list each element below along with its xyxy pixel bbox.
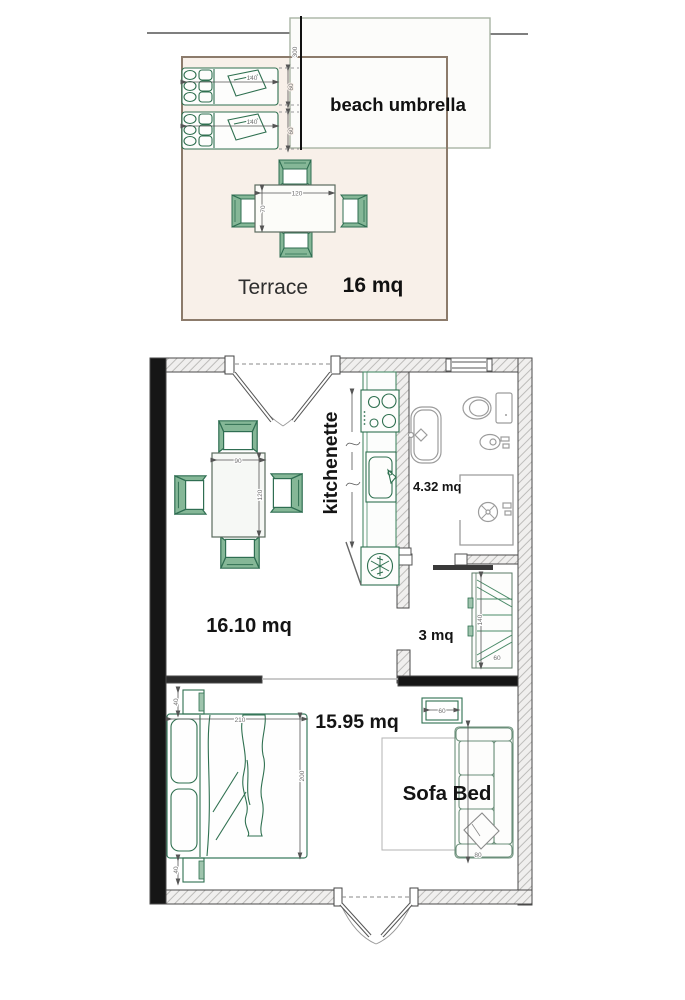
bathroom: 4.32 mq: [409, 393, 514, 545]
kitchen-sink: [366, 452, 396, 502]
living-room: 90 120 16.10 mq: [175, 421, 302, 637]
wardrobe: 140 60: [468, 573, 512, 668]
bath-sink: [409, 407, 442, 463]
dim-boundary: 300: [292, 46, 299, 57]
dim-dining-width: 90: [234, 458, 242, 465]
closet-area-label: 3 mq: [418, 627, 453, 644]
wall-bottom-1: [166, 890, 338, 904]
dim-nightstand-bottom: 40: [173, 866, 180, 874]
wall-closet-bottom: [398, 676, 518, 686]
bathroom-window: [446, 358, 492, 372]
dim-lounger2-width: 60: [288, 127, 295, 135]
beach-umbrella-zone: [290, 18, 490, 148]
side-table: 60: [422, 698, 462, 723]
dim-nightstand-top: 40: [173, 698, 180, 706]
kitchen-dim-line: [346, 392, 360, 545]
wall-bottom-2: [412, 890, 532, 904]
shower: [460, 475, 513, 545]
toilet: [463, 393, 512, 423]
bidet: [480, 435, 509, 450]
dim-dining-length: 120: [257, 489, 264, 500]
dim-bed-length: 200: [299, 770, 306, 781]
dim-wardrobe-length: 140: [477, 614, 484, 625]
floorplan-drawing: 300 140 60: [0, 0, 685, 1000]
dim-terrace-table-length: 120: [292, 191, 303, 198]
wall-bedroom-divider: [166, 676, 262, 683]
kitchenette: kitchenette: [320, 372, 399, 585]
bedroom-area-label: 15.95 mq: [315, 711, 398, 733]
fridge: [346, 542, 399, 585]
nightstand-bottom: 40: [173, 858, 204, 882]
dim-lounger2-length: 140: [247, 119, 258, 126]
wall-top-2: [340, 358, 448, 372]
fridge-door-line: [346, 542, 361, 585]
bathroom-area-label: 4.32 mq: [413, 479, 461, 494]
wall-top-1: [166, 358, 226, 372]
living-area-label: 16.10 mq: [206, 615, 292, 637]
double-bed: 210 200: [167, 714, 307, 858]
kitchenette-label: kitchenette: [320, 411, 342, 514]
terrace-area-label: 16 mq: [343, 274, 404, 297]
stove: [361, 390, 399, 432]
terrace-section: 300 140 60: [147, 16, 528, 320]
dim-wardrobe-depth: 60: [493, 655, 501, 662]
dim-bed-width: 210: [235, 717, 246, 724]
wall-left: [150, 358, 166, 904]
beach-umbrella-label: beach umbrella: [330, 94, 466, 115]
dim-side-table: 60: [438, 708, 446, 715]
dim-lounger1-length: 140: [247, 75, 258, 82]
wall-right: [518, 358, 532, 905]
sofa-bed-label: Sofa Bed: [403, 782, 492, 805]
bedroom: 210 200 40 40 60: [167, 690, 513, 882]
dim-lounger1-width: 60: [288, 83, 295, 91]
dim-terrace-table-width: 70: [260, 205, 267, 213]
closet: 140 60 3 mq: [418, 573, 512, 668]
terrace-label: Terrace: [238, 276, 308, 299]
dim-sofa-depth: 80: [474, 852, 482, 859]
floorplan-page: 300 140 60: [0, 0, 685, 1000]
nightstand-top: 40: [173, 690, 204, 714]
bedroom-door: [334, 888, 418, 944]
